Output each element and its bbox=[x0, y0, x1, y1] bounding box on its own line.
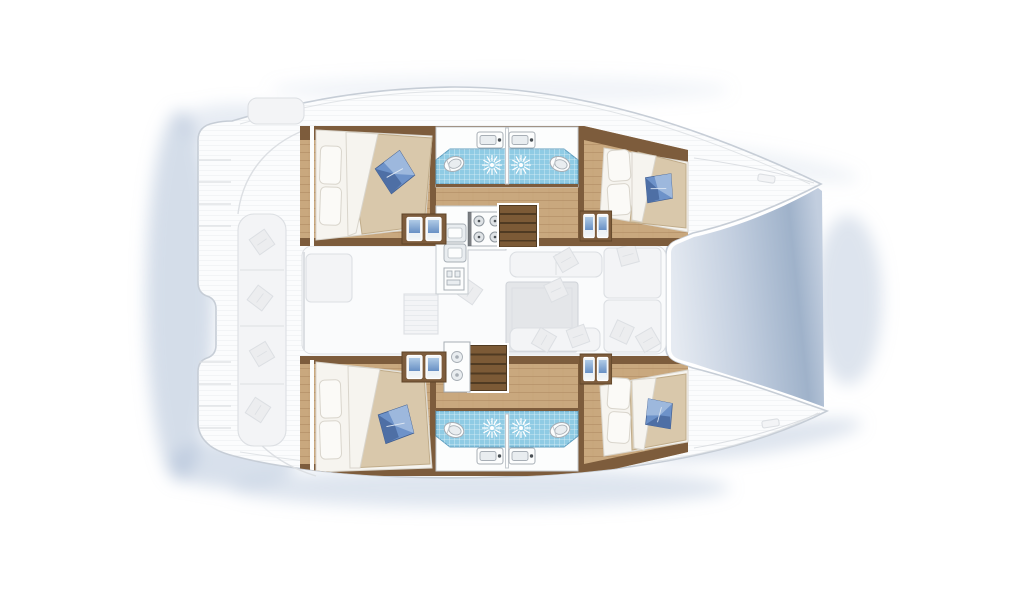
sink-icon bbox=[477, 132, 503, 148]
oven bbox=[444, 268, 464, 290]
companionway-starboard bbox=[468, 344, 508, 392]
bed-pillow bbox=[319, 187, 341, 226]
sink-icon bbox=[477, 448, 503, 464]
bed-pillow bbox=[319, 380, 341, 419]
bed-pillow bbox=[607, 411, 631, 443]
locker-doors bbox=[580, 354, 612, 384]
appliance-portholes bbox=[444, 342, 470, 392]
companionway-port bbox=[498, 204, 538, 248]
helm-seat bbox=[248, 98, 304, 124]
sink-icon bbox=[509, 132, 535, 148]
salon-settee bbox=[306, 254, 352, 302]
bed-pillow bbox=[607, 149, 631, 181]
sink-icon bbox=[509, 448, 535, 464]
cabin-starboard-forward bbox=[600, 370, 688, 456]
salon bbox=[302, 237, 666, 356]
locker-doors bbox=[402, 352, 446, 382]
salon-rug bbox=[404, 294, 438, 334]
starboard-hull-interior bbox=[300, 342, 688, 476]
bathroom-starboard bbox=[436, 408, 578, 471]
bed-pillow bbox=[319, 146, 341, 185]
locker-doors bbox=[402, 214, 446, 244]
locker-doors bbox=[580, 211, 612, 241]
catamaran-floorplan bbox=[0, 0, 1024, 600]
bathroom-port bbox=[436, 127, 578, 187]
bed-pillow bbox=[319, 421, 341, 460]
floorplan-canvas bbox=[0, 0, 1024, 600]
